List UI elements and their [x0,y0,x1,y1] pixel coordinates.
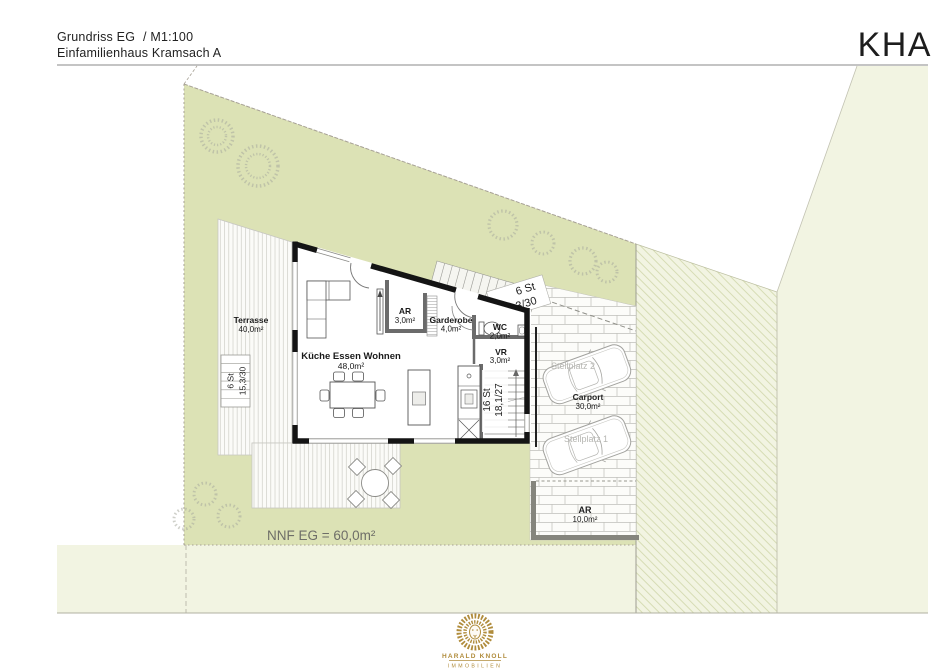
interior-stair-dim: 18,1/27 [494,383,505,417]
interior-stair-count: 16 St [482,388,493,412]
road-strip-south [57,545,928,613]
garden-table [362,470,389,497]
room-area-wohnen: 48,0m² [338,361,365,371]
room-area-terrasse: 40,0m² [239,325,264,334]
chair [334,372,345,381]
nnf-label: NNF EG = 60,0m² [267,528,376,543]
stellplatz1-label: Stellplatz 1 [564,434,608,444]
terrace-stair-count: 6 St [226,373,236,389]
dining-table [330,382,375,408]
terrace-stair: 6 St 15,3/30 [221,355,250,407]
chair [353,409,364,418]
kitchen-sink-icon [465,394,473,404]
carport-label: Carport [573,392,604,402]
room-area-wc: 2,0m² [490,332,511,341]
room-label-ar: AR [399,306,411,316]
logo-name: HARALD KNOLL [442,653,508,660]
storage-label: AR [579,505,592,515]
chair [353,372,364,381]
kitchen-island [408,370,430,425]
chair [320,390,329,401]
room-area-ar: 3,0m² [395,316,416,325]
site-plan: 6 St 15,3/30 Stellplatz 2 Stellplatz 1 C… [0,0,950,671]
neighbor-parcel-east [777,66,928,613]
logo-division: IMMOBILIEN [448,664,503,670]
slope-hatch-area [636,244,777,613]
terrace-stair-dim: 15,3/30 [238,367,248,396]
lion-logo: HARALD KNOLL IMMOBILIEN [442,616,508,670]
room-area-vr: 3,0m² [490,356,511,365]
floorplan-sheet: Grundriss EG / M1:100 Einfamilienhaus Kr… [0,0,950,671]
sliding-door [377,289,383,334]
room-label-wc: WC [493,322,507,332]
chair [334,409,345,418]
stellplatz2-label: Stellplatz 2 [551,361,595,371]
carport-area: 30,0m² [576,402,601,411]
room-area-garderobe: 4,0m² [441,325,462,334]
kitchen-counter [458,366,480,441]
carport: Stellplatz 2 Stellplatz 1 Carport 30,0m²… [530,282,639,540]
terrace-deck [218,219,295,455]
room-label-terrasse: Terrasse [234,315,269,325]
property-line-stub [184,66,197,84]
room-label-garderobe: Garderobe [430,315,473,325]
storage-area: 10,0m² [573,515,598,524]
island-sink-icon [413,392,426,405]
carport-paving [530,282,636,540]
toilet-tank [479,322,484,335]
chair [376,390,385,401]
